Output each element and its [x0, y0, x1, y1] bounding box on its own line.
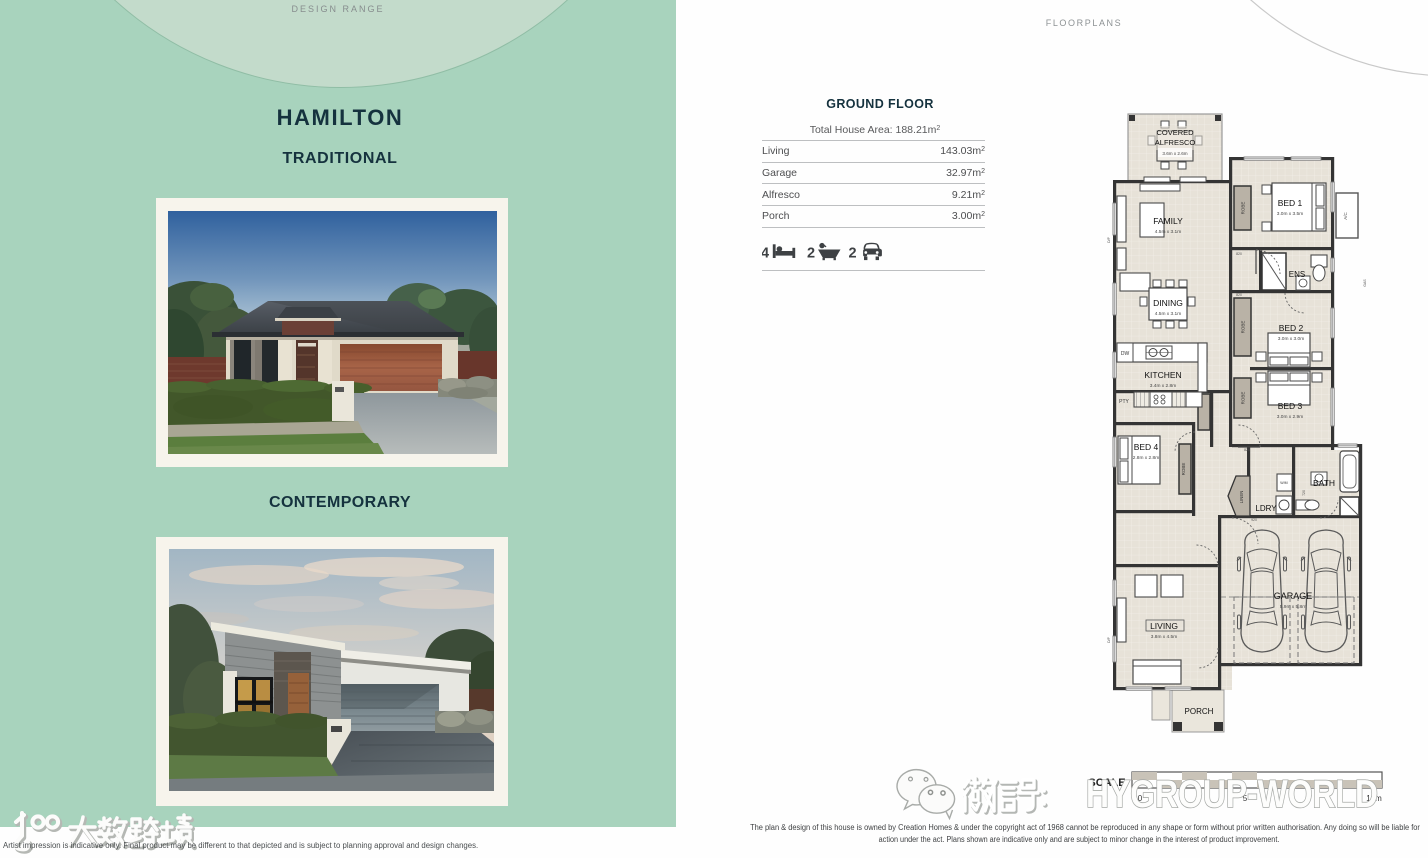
svg-text:D/P: D/P	[1107, 236, 1111, 243]
svg-text:BED 1: BED 1	[1278, 198, 1303, 208]
svg-text:PORCH: PORCH	[1185, 707, 1214, 716]
svg-text:4.5m x 3.1m: 4.5m x 3.1m	[1155, 229, 1181, 235]
svg-text:KITCHEN: KITCHEN	[1144, 370, 1181, 380]
svg-text:ROBE: ROBE	[1241, 392, 1246, 405]
svg-text:820: 820	[1244, 448, 1250, 452]
svg-text:DINING: DINING	[1153, 298, 1183, 308]
svg-text:4: 4	[762, 246, 769, 262]
svg-text:BATH: BATH	[1313, 478, 1335, 488]
svg-text:2: 2	[849, 246, 857, 262]
svg-text:5.9m x 5.8m: 5.9m x 5.8m	[1280, 604, 1306, 610]
svg-text:820: 820	[1236, 252, 1242, 256]
svg-text:3.0m x 2.9m: 3.0m x 2.9m	[1277, 414, 1303, 420]
svg-text:2: 2	[807, 246, 815, 262]
svg-text:720: 720	[1302, 490, 1306, 496]
svg-text:ENS: ENS	[1289, 270, 1305, 279]
svg-text:3.0m x 3.5m: 3.0m x 3.5m	[1277, 211, 1303, 217]
svg-text:LDRY: LDRY	[1255, 504, 1277, 513]
svg-text:W/M: W/M	[1280, 481, 1287, 485]
svg-text:ALFRESCO: ALFRESCO	[1155, 138, 1196, 147]
svg-text:BED 4: BED 4	[1134, 442, 1159, 452]
svg-text:ROBE: ROBE	[1241, 202, 1246, 215]
svg-text:FAMILY: FAMILY	[1153, 216, 1183, 226]
svg-text:ROBE: ROBE	[1181, 463, 1186, 476]
svg-text:ROBE: ROBE	[1241, 321, 1246, 334]
svg-text:920: 920	[1251, 518, 1257, 522]
svg-text:LINEN: LINEN	[1239, 491, 1244, 504]
svg-text:3.6m x 2.6m: 3.6m x 2.6m	[1162, 151, 1187, 156]
svg-text:COVERED: COVERED	[1156, 128, 1194, 137]
svg-text:3.0m x 3.0m: 3.0m x 3.0m	[1278, 336, 1304, 342]
svg-text:GARAGE: GARAGE	[1274, 591, 1313, 601]
svg-text:4.5m x 3.1m: 4.5m x 3.1m	[1155, 311, 1181, 317]
svg-text:A/C: A/C	[1343, 212, 1348, 220]
svg-text:DW: DW	[1121, 351, 1130, 357]
svg-text:BED 3: BED 3	[1278, 401, 1303, 411]
svg-text:3.4m x 2.8m: 3.4m x 2.8m	[1150, 383, 1176, 389]
svg-text:820: 820	[1236, 293, 1242, 297]
svg-text:HYGROUP-WORLD: HYGROUP-WORLD	[1086, 773, 1378, 816]
svg-text:PTY: PTY	[1119, 399, 1129, 405]
svg-text:BED 2: BED 2	[1279, 323, 1304, 333]
svg-text:D/P: D/P	[1107, 636, 1111, 643]
svg-text:2.8m x 2.8m: 2.8m x 2.8m	[1133, 455, 1159, 461]
svg-text:3.8m x 4.5m: 3.8m x 4.5m	[1151, 634, 1177, 640]
svg-text:GAS: GAS	[1363, 279, 1367, 287]
svg-text:LIVING: LIVING	[1150, 621, 1178, 631]
